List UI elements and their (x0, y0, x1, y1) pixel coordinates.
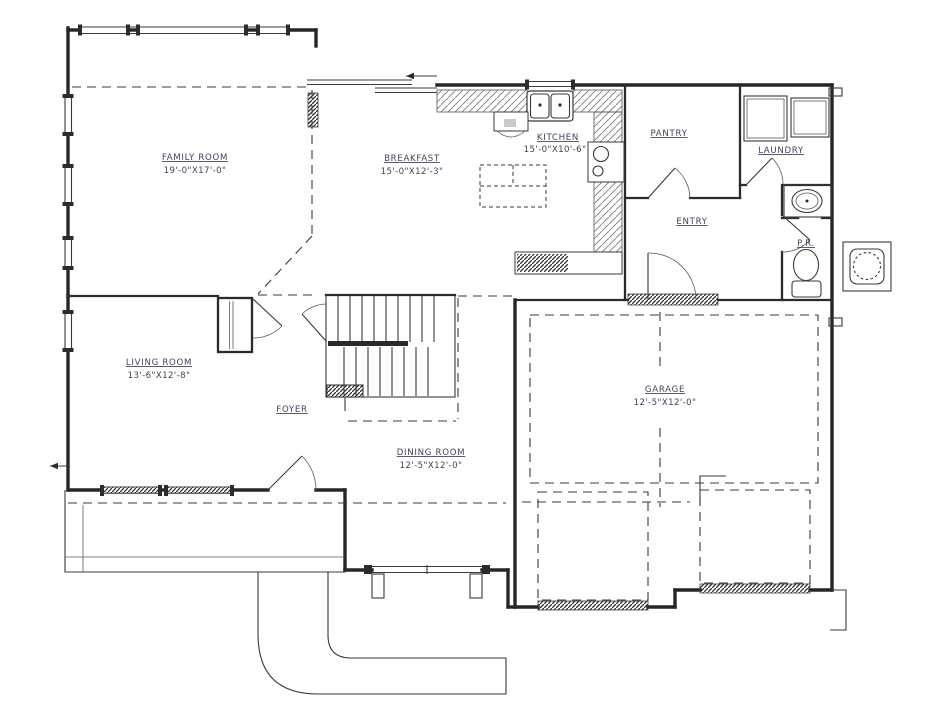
dryer (791, 98, 829, 137)
room-dims-family-room: 19'-0"X17'-0" (164, 166, 227, 176)
page: FAMILY ROOM 19'-0"X17'-0" BREAKFAST 15'-… (0, 0, 934, 716)
room-label-laundry: LAUNDRY (758, 146, 804, 156)
vanity-sink (784, 185, 831, 217)
washer (744, 96, 787, 141)
laundry-fixtures (744, 96, 829, 141)
room-label-foyer: FOYER (276, 405, 307, 415)
range (588, 142, 624, 182)
interior-walls (68, 85, 832, 305)
room-label-powder-room: P.R. (797, 239, 815, 249)
room-dims-kitchen: 15'-0"X10'-6" (524, 145, 587, 155)
room-label-family-room: FAMILY ROOM (162, 153, 228, 163)
room-label-dining-room: DINING ROOM (397, 448, 466, 458)
ac-unit (843, 242, 891, 291)
room-label-breakfast: BREAKFAST (384, 154, 440, 164)
room-label-entry: ENTRY (676, 217, 707, 227)
exterior-walls (68, 28, 832, 607)
dishwasher (494, 112, 528, 137)
room-dims-living-room: 13'-6"X12'-8" (128, 371, 191, 381)
closet-door (253, 299, 282, 338)
pantry-door (648, 168, 690, 198)
walkway (258, 572, 506, 694)
room-dims-garage: 12'-5"X12'-0" (634, 398, 697, 408)
top-arrow-marker (406, 73, 437, 79)
stair-side-door (302, 304, 326, 341)
foyer-closet (218, 298, 252, 352)
doors (253, 158, 810, 490)
garage-overhead-doors (522, 312, 818, 610)
toilet (792, 250, 821, 298)
kitchen-peninsula (515, 252, 622, 274)
room-label-pantry: PANTRY (650, 129, 687, 139)
porch (65, 490, 345, 572)
floor-plan-drawing: FAMILY ROOM 19'-0"X17'-0" BREAKFAST 15'-… (0, 0, 934, 716)
room-label-garage: GARAGE (645, 385, 685, 395)
staircase (326, 295, 455, 411)
garage-entry-door (648, 253, 696, 300)
kitchen-sink (527, 91, 573, 121)
laundry-door (746, 158, 783, 185)
room-label-living-room: LIVING ROOM (126, 358, 192, 368)
front-door (268, 456, 316, 490)
room-dims-dining-room: 12'-5"X12'-0" (400, 461, 463, 471)
room-dims-breakfast: 15'-0"X12'-3" (381, 167, 444, 177)
room-label-kitchen: KITCHEN (537, 133, 579, 143)
kitchen-island (480, 165, 546, 207)
kitchen-fixtures (437, 90, 624, 274)
